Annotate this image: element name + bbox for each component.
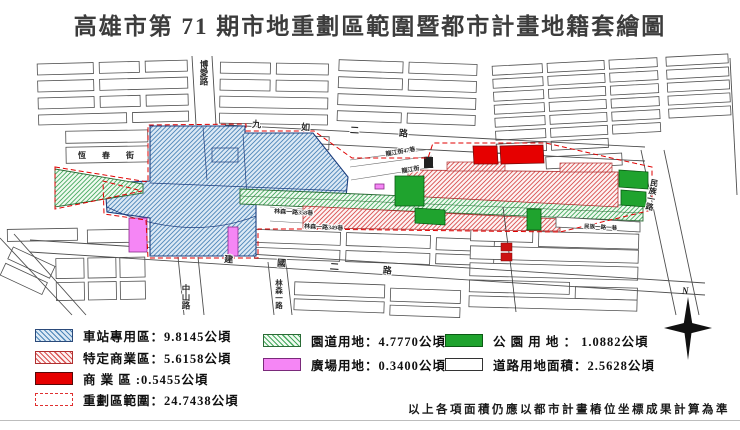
bottom-divider [0,420,740,421]
legend-label-station: 車站專用區：9.8145公頃 [83,326,231,345]
legend-label-commercial: 商 業 區 :0.5455公頃 [83,369,208,388]
legend-label-special-commercial: 特定商業區：5.6158公頃 [83,348,231,367]
city-blocks-top-right [337,60,477,126]
legend-label-parkway: 園道用地：4.7770公頃 [311,331,446,350]
legend-swatch-station [35,329,73,342]
city-blocks-top-left [37,60,189,125]
legend-swatch-park [445,334,483,347]
legend-item-commercial: 商 業 區 :0.5455公頃 [35,369,208,388]
city-blocks-far-right [492,54,732,153]
compass-n-label: N [681,286,689,296]
legend-item-park: 公 園 用 地 ： 1.0882公頃 [445,331,649,350]
legend-item-road: 道路用地面積：2.5628公頃 [445,355,655,374]
legend-item-station: 車站專用區：9.8145公頃 [35,326,231,345]
legend-item-plaza: 廣場用地：0.3400公頃 [263,355,446,374]
city-blocks-bottom-right [469,226,639,311]
compass-rose: N [664,286,712,360]
legend-swatch-plaza [263,358,301,371]
legend-swatch-boundary [35,393,73,406]
legend-swatch-commercial [35,372,73,385]
legend-swatch-special-commercial [35,351,73,364]
legend-swatch-road [445,358,483,371]
commercial-block-1 [473,146,498,164]
commercial-block-2 [500,145,544,164]
legend-label-boundary: 重劃區範圍：24.7438公頃 [83,390,239,409]
road-label-linsen: 林森一路 [274,278,283,311]
legend-item-boundary: 重劃區範圍：24.7438公頃 [35,390,239,409]
legend-label-plaza: 廣場用地：0.3400公頃 [311,355,446,374]
footnote: 以上各項面積仍應以都市計畫樁位坐標成果計算為準 [408,401,730,417]
road-label-zhongshan: 中山路 [181,283,191,310]
road-label-hengchun: 恆春街 [77,150,150,160]
lane-label-longjiang-47: 龍江街47巷 [385,145,416,158]
special-commercial-notch-2 [560,163,612,172]
legend-label-road: 道路用地面積：2.5628公頃 [493,355,655,374]
legend-swatch-parkway [263,334,301,347]
legend-label-park: 公 園 用 地 ： 1.0882公頃 [493,331,649,350]
road-label-boai: 博愛路 [199,59,209,86]
legend-item-special-commercial: 特定商業區：5.6158公頃 [35,348,231,367]
small-building-block [424,157,433,168]
city-blocks-top-mid [219,62,328,125]
legend-item-parkway: 園道用地：4.7770公頃 [263,331,446,350]
